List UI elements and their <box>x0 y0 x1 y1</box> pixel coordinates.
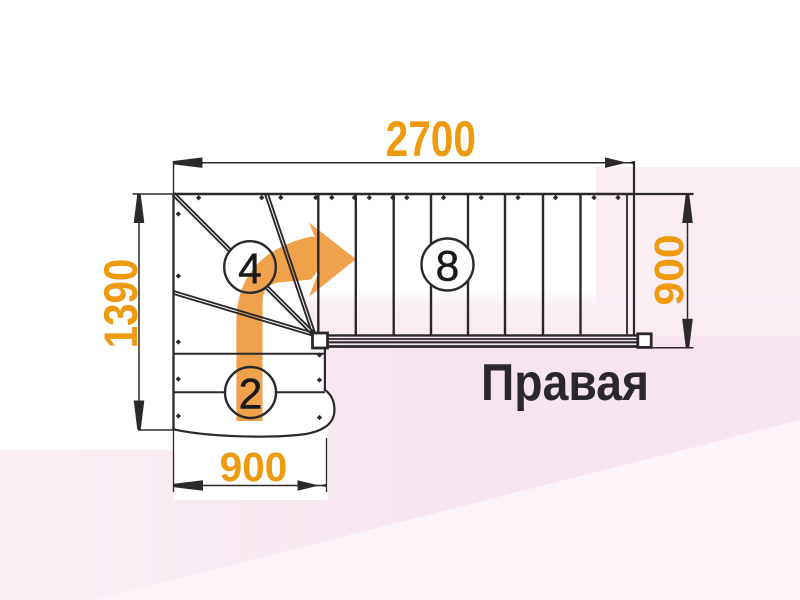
svg-text:Правая: Правая <box>481 355 649 412</box>
svg-text:8: 8 <box>436 244 460 291</box>
svg-text:2: 2 <box>239 372 263 419</box>
svg-text:900: 900 <box>646 234 692 305</box>
svg-text:1390: 1390 <box>95 259 148 348</box>
svg-text:900: 900 <box>220 444 288 490</box>
svg-text:2700: 2700 <box>386 111 476 167</box>
svg-text:4: 4 <box>238 246 262 293</box>
